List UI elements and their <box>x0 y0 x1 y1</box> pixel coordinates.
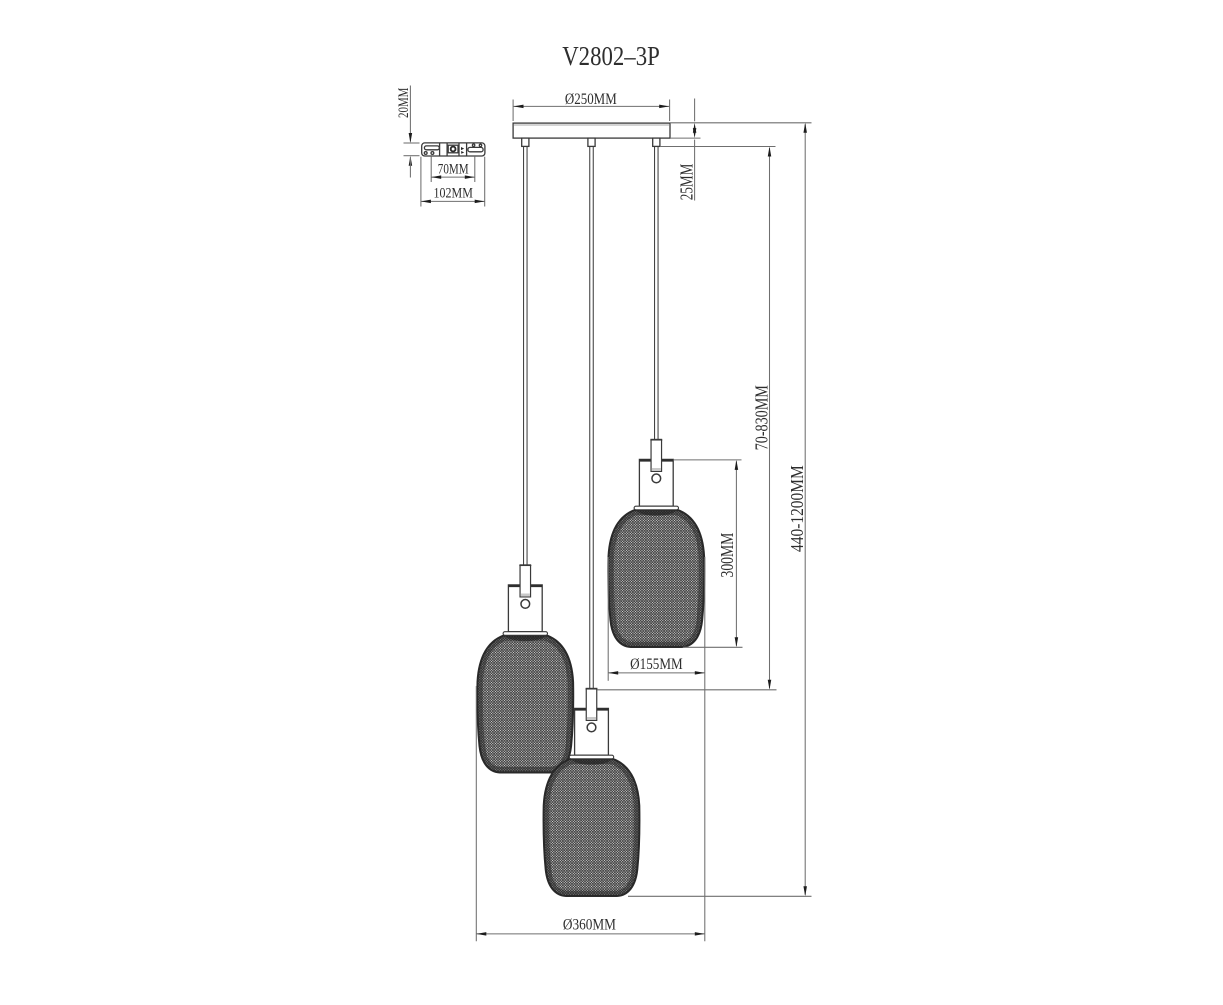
svg-text:300MM: 300MM <box>719 533 738 578</box>
svg-text:70MM: 70MM <box>438 160 469 177</box>
svg-text:102MM: 102MM <box>434 184 473 201</box>
svg-text:70-830MM: 70-830MM <box>753 385 772 450</box>
svg-text:440-1200MM: 440-1200MM <box>787 465 807 552</box>
svg-text:25MM: 25MM <box>678 164 697 200</box>
svg-text:Ø155MM: Ø155MM <box>630 656 682 673</box>
svg-text:Ø250MM: Ø250MM <box>565 91 617 109</box>
svg-text:20MM: 20MM <box>394 87 411 118</box>
svg-text:V2802–3P: V2802–3P <box>562 42 660 71</box>
svg-text:Ø360MM: Ø360MM <box>563 916 616 933</box>
